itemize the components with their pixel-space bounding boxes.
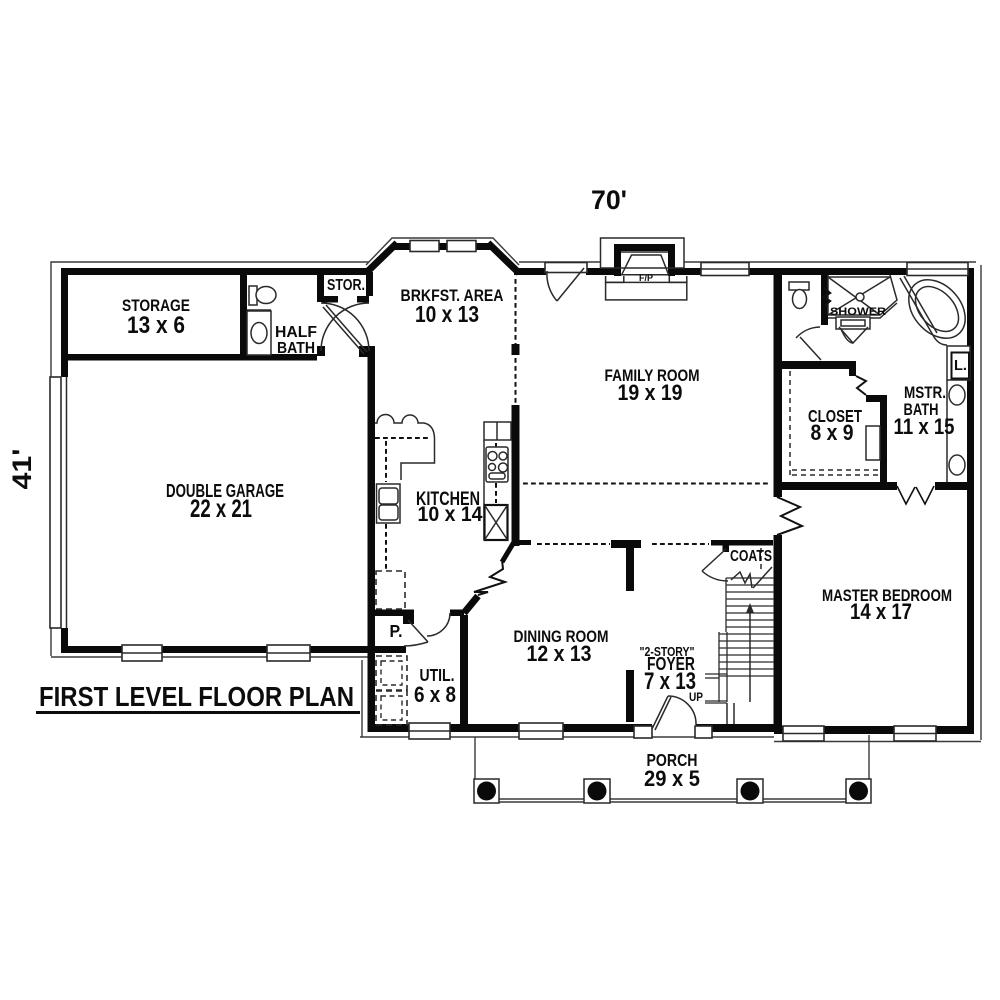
svg-text:SHOWER: SHOWER (830, 306, 886, 318)
svg-text:22 x 21: 22 x 21 (190, 495, 252, 523)
svg-text:13 x 6: 13 x 6 (127, 312, 185, 339)
svg-text:6 x 8: 6 x 8 (414, 682, 456, 707)
svg-text:14 x 17: 14 x 17 (850, 599, 912, 624)
svg-text:11 x 15: 11 x 15 (894, 414, 955, 439)
svg-text:19 x 19: 19 x 19 (618, 380, 683, 405)
svg-text:8 x 9: 8 x 9 (811, 420, 854, 445)
svg-text:70': 70' (591, 185, 627, 215)
svg-text:UP: UP (689, 690, 703, 704)
svg-text:COATS: COATS (730, 548, 772, 565)
svg-text:10 x 14: 10 x 14 (418, 502, 483, 526)
svg-text:29 x 5: 29 x 5 (644, 766, 700, 791)
svg-text:12 x 13: 12 x 13 (527, 641, 592, 666)
svg-text:41': 41' (7, 449, 37, 490)
svg-text:F/P: F/P (639, 273, 653, 283)
svg-text:10 x 13: 10 x 13 (415, 301, 479, 327)
svg-text:HALF: HALF (275, 324, 317, 341)
svg-text:L.: L. (954, 357, 967, 374)
svg-text:STOR.: STOR. (327, 277, 365, 294)
svg-text:P.: P. (390, 621, 403, 641)
svg-text:BATH: BATH (277, 340, 315, 357)
svg-text:MSTR.: MSTR. (904, 384, 946, 402)
svg-text:FIRST LEVEL FLOOR PLAN: FIRST LEVEL FLOOR PLAN (39, 681, 354, 712)
